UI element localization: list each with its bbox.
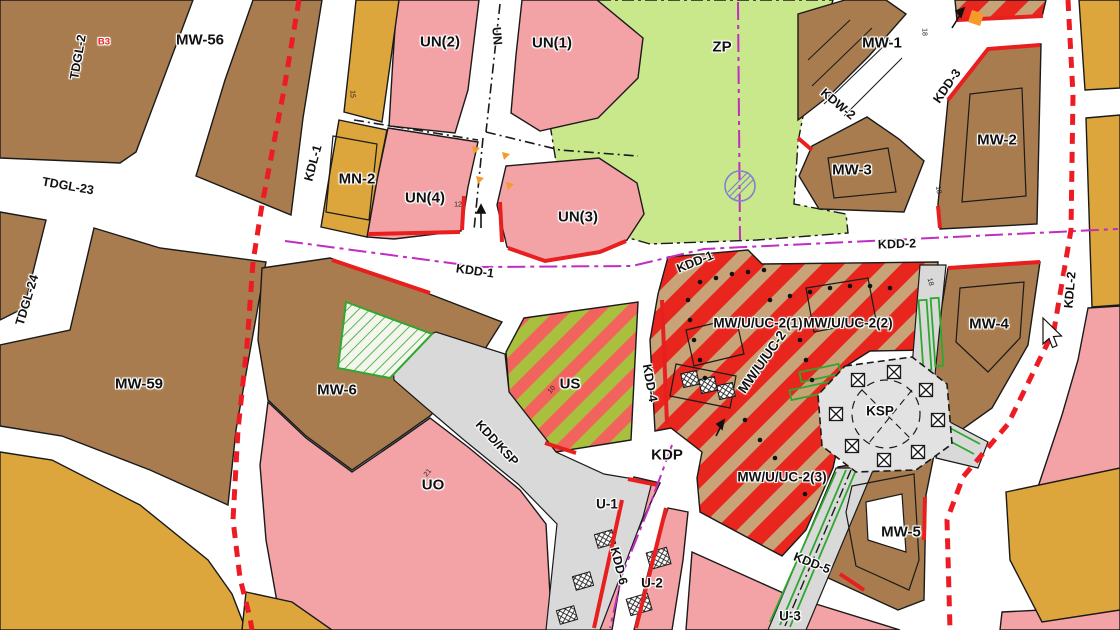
zone-mustard-ne2 xyxy=(1086,115,1120,307)
ksp-area xyxy=(818,357,952,472)
zoning-map-canvas xyxy=(0,0,1120,630)
zone-mustard-ne1 xyxy=(1079,0,1120,90)
zoning-map-viewport[interactable]: TDGL-2B3MW-56UN(2)UNUN(1)ZPMW-1KDW-2KDD-… xyxy=(0,0,1120,630)
